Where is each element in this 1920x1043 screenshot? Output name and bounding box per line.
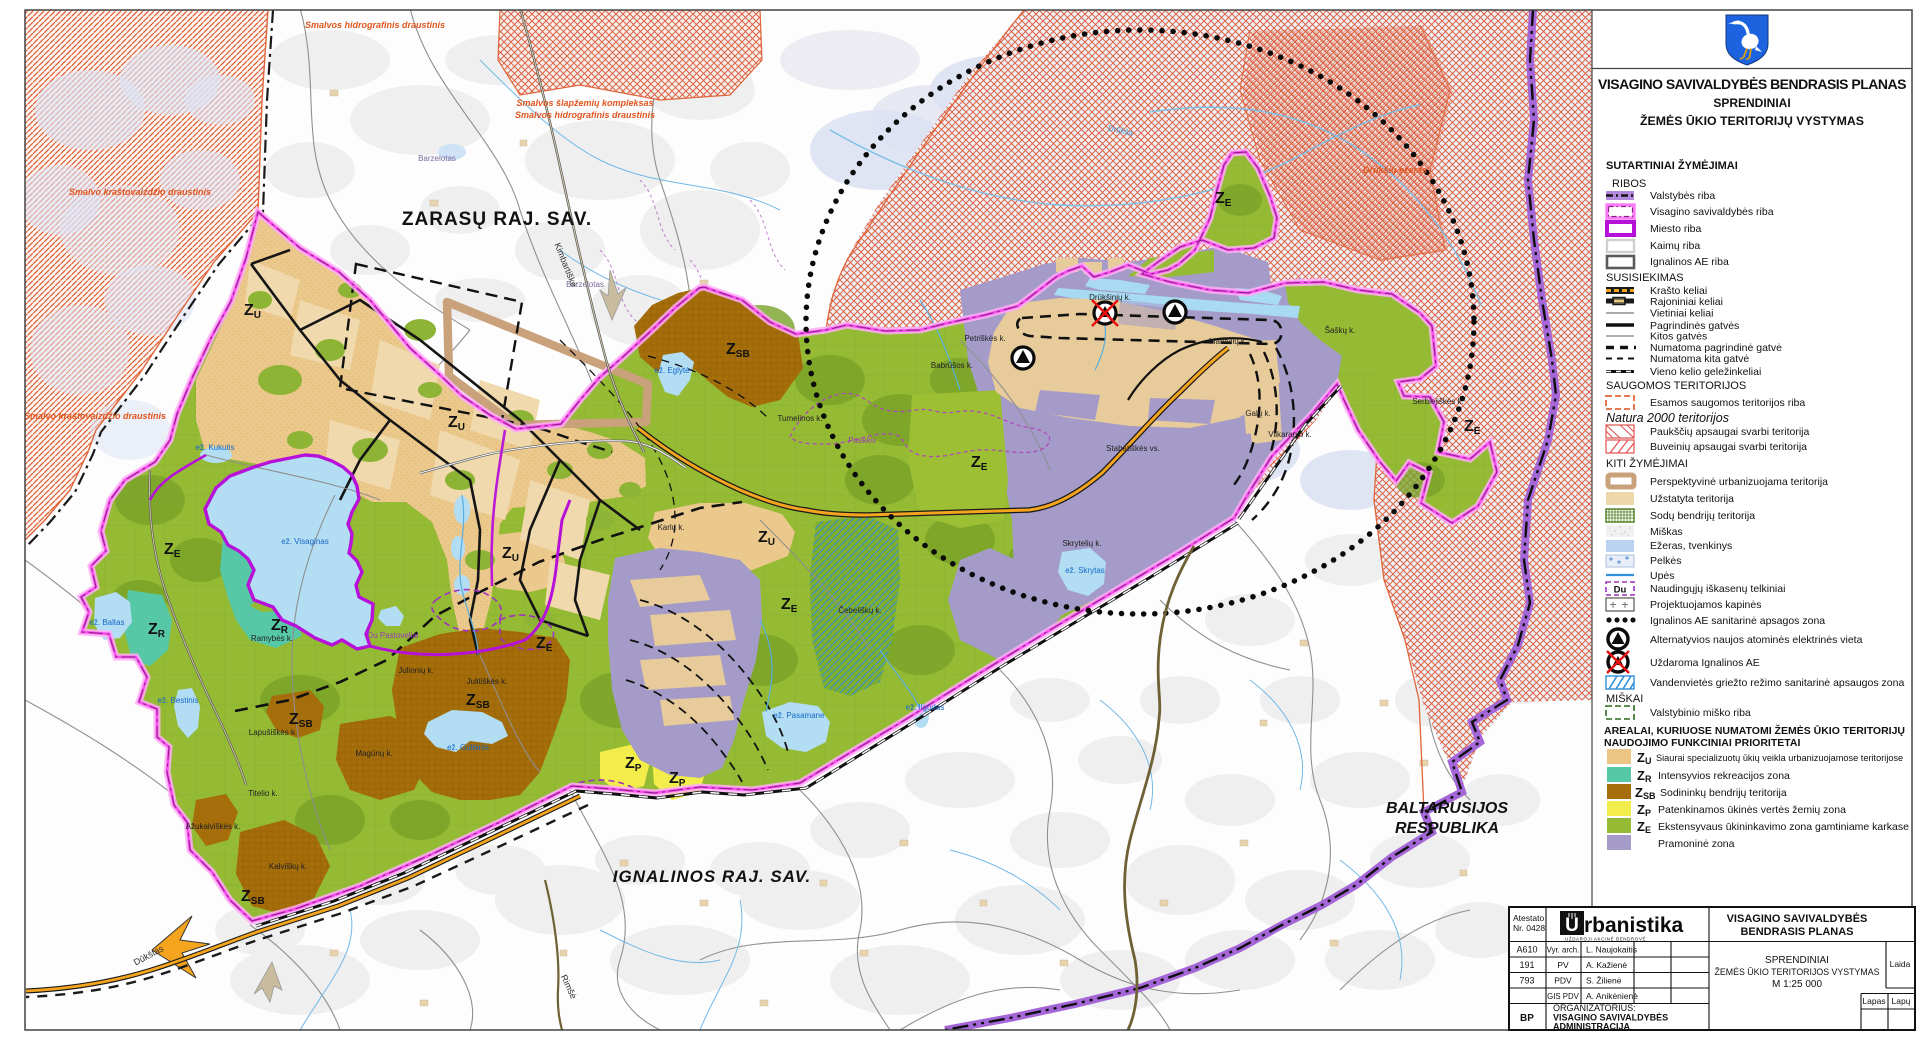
- svg-text:Lapų: Lapų: [1892, 996, 1911, 1006]
- svg-text:S. Žilienė: S. Žilienė: [1586, 976, 1622, 986]
- svg-text:793: 793: [1519, 976, 1534, 986]
- svg-text:PV: PV: [1557, 960, 1569, 970]
- svg-text:ŽEMĖS ŪKIO TERITORIJOS VYSTYMA: ŽEMĖS ŪKIO TERITORIJOS VYSTYMAS: [1715, 967, 1880, 977]
- svg-text:Laida: Laida: [1890, 959, 1911, 969]
- svg-text:GIS PDV: GIS PDV: [1547, 992, 1579, 1001]
- svg-text:L. Naujokaitis: L. Naujokaitis: [1586, 945, 1637, 955]
- svg-text:ORGANIZATORIUS:: ORGANIZATORIUS:: [1553, 1003, 1636, 1013]
- svg-text:A610: A610: [1516, 945, 1537, 955]
- svg-text:Lapas: Lapas: [1862, 996, 1885, 1006]
- svg-text:M 1:25 000: M 1:25 000: [1772, 979, 1822, 990]
- svg-text:191: 191: [1519, 960, 1534, 970]
- svg-text:BP: BP: [1520, 1013, 1534, 1024]
- svg-text:A. Kažienė: A. Kažienė: [1586, 960, 1627, 970]
- svg-text:UŽDAROJI AKCINĖ BENDROVĖ: UŽDAROJI AKCINĖ BENDROVĖ: [1565, 935, 1646, 942]
- svg-text:VISAGINO SAVIVALDYBĖS: VISAGINO SAVIVALDYBĖS: [1727, 912, 1868, 925]
- svg-text:Nr. 0428: Nr. 0428: [1513, 923, 1545, 933]
- svg-text:SPRENDINIAI: SPRENDINIAI: [1765, 955, 1829, 966]
- svg-text:Vyr. arch.: Vyr. arch.: [1547, 946, 1580, 955]
- svg-text:Atestato: Atestato: [1513, 913, 1544, 923]
- svg-text:PDV: PDV: [1554, 976, 1572, 986]
- svg-text:A. Anikėnienė: A. Anikėnienė: [1586, 991, 1638, 1001]
- svg-text:ADMINISTRACIJA: ADMINISTRACIJA: [1553, 1022, 1631, 1032]
- svg-text:rbanistika: rbanistika: [1584, 914, 1684, 937]
- svg-text:BENDRASIS PLANAS: BENDRASIS PLANAS: [1740, 926, 1853, 938]
